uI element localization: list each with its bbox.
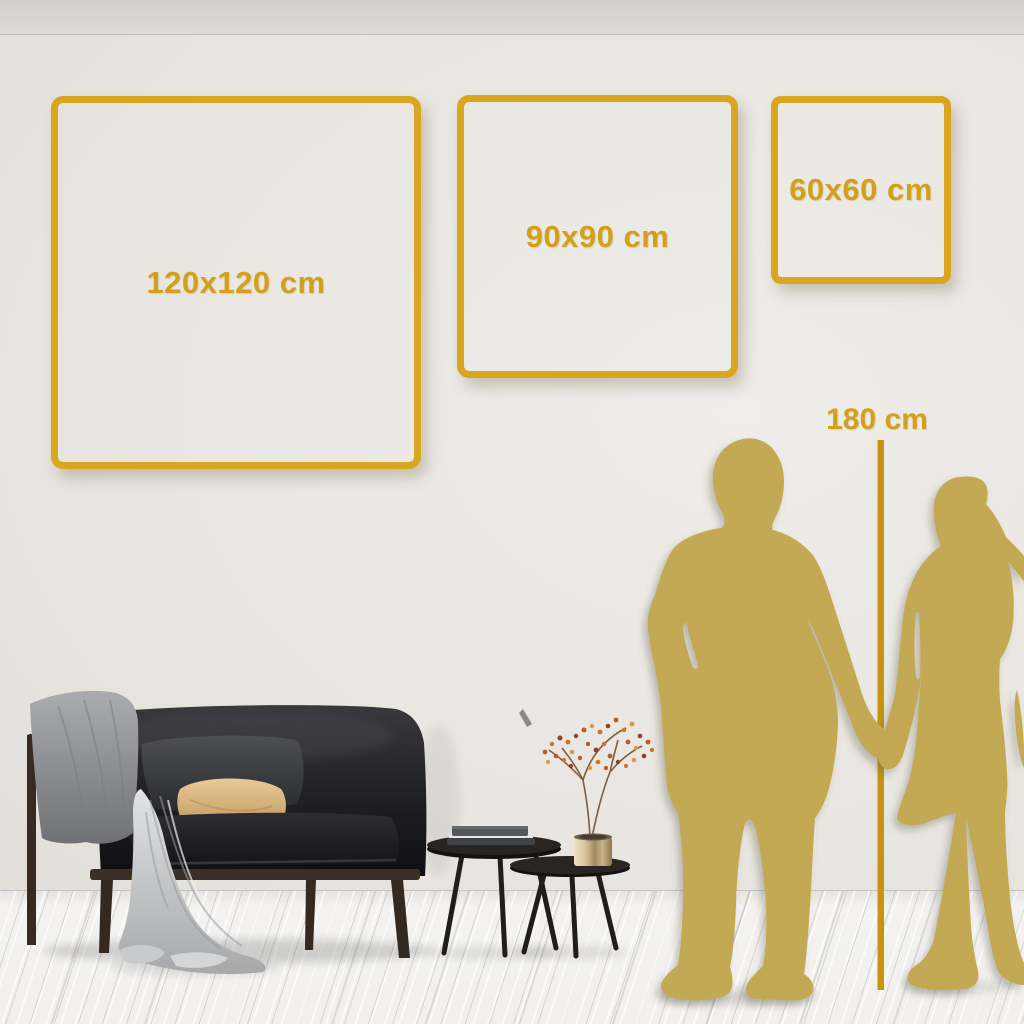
size-label-90x90: 90x90 cm <box>526 219 670 255</box>
sofa <box>27 691 426 974</box>
height-reference-label: 180 cm <box>826 403 928 437</box>
branch-blossoms <box>543 718 655 771</box>
nesting-coffee-tables <box>427 718 654 956</box>
size-frame-90x90: 90x90 cm <box>457 95 738 378</box>
seat-cushion <box>130 813 399 867</box>
books-stack <box>447 826 535 845</box>
size-frame-60x60: 60x60 cm <box>771 96 951 284</box>
woman-silhouette <box>878 476 1024 990</box>
couple-silhouette <box>648 438 1024 1000</box>
man-silhouette <box>648 438 894 1000</box>
vase-body <box>574 837 612 866</box>
height-reference-line <box>878 440 885 990</box>
size-guide-scene: 120x120 cm 90x90 cm 60x60 cm 180 cm <box>0 0 1024 1024</box>
wall-mark <box>519 709 532 727</box>
size-label-60x60: 60x60 cm <box>789 172 933 208</box>
size-label-120x120: 120x120 cm <box>146 265 325 301</box>
size-frame-120x120: 120x120 cm <box>51 96 421 469</box>
